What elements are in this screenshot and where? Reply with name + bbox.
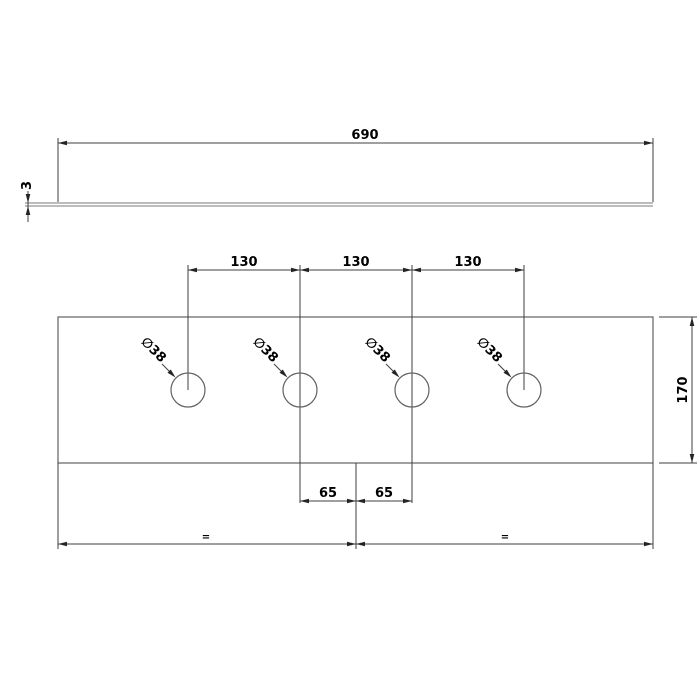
thickness-arrow-bottom [26, 206, 31, 215]
hole4-diameter-text: ∅38 [473, 335, 504, 366]
spacing-arrow-1L [188, 268, 197, 273]
width-dimension-text: 690 [351, 128, 378, 143]
equal-arrow-2R [644, 542, 653, 547]
spacing-text-1: 130 [230, 255, 257, 270]
hole2-diameter-text: ∅38 [249, 335, 280, 366]
hole4-diameter-callout: ∅38 [473, 335, 513, 380]
front-view: ∅38 ∅38 ∅38 ∅38 130 130 130 [58, 255, 697, 549]
equal-text-1: = [202, 532, 210, 543]
hole1-diameter-callout: ∅38 [137, 335, 177, 380]
spacing-arrow-2R [403, 268, 412, 273]
thickness-arrow-top [26, 194, 31, 203]
top-view: 690 3 [20, 128, 653, 222]
height-arrow-bottom [690, 454, 695, 463]
hole3-diameter-text: ∅38 [361, 335, 392, 366]
equal-arrow-1R [347, 542, 356, 547]
technical-drawing-page: 690 3 ∅38 ∅38 [0, 0, 700, 700]
technical-drawing-canvas: 690 3 ∅38 ∅38 [0, 0, 700, 700]
width-arrow-left [58, 141, 67, 146]
equal-text-2: = [501, 532, 509, 543]
offset-arrow-1L [300, 499, 309, 504]
hole1-diameter-text: ∅38 [137, 335, 168, 366]
offset-arrow-1R [347, 499, 356, 504]
offset-text-1: 65 [319, 486, 337, 501]
spacing-arrow-2L [300, 268, 309, 273]
width-arrow-right [644, 141, 653, 146]
spacing-arrow-1R [291, 268, 300, 273]
spacing-arrow-3R [515, 268, 524, 273]
offset-arrow-2L [356, 499, 365, 504]
thickness-dimension-text: 3 [20, 181, 35, 190]
spacing-text-3: 130 [454, 255, 481, 270]
offset-arrow-2R [403, 499, 412, 504]
equal-arrow-2L [356, 542, 365, 547]
spacing-text-2: 130 [342, 255, 369, 270]
equal-arrow-1L [58, 542, 67, 547]
height-dimension-text: 170 [676, 376, 691, 403]
height-arrow-top [690, 317, 695, 326]
offset-text-2: 65 [375, 486, 393, 501]
spacing-arrow-3L [412, 268, 421, 273]
hole3-diameter-callout: ∅38 [361, 335, 401, 380]
hole2-diameter-callout: ∅38 [249, 335, 289, 380]
